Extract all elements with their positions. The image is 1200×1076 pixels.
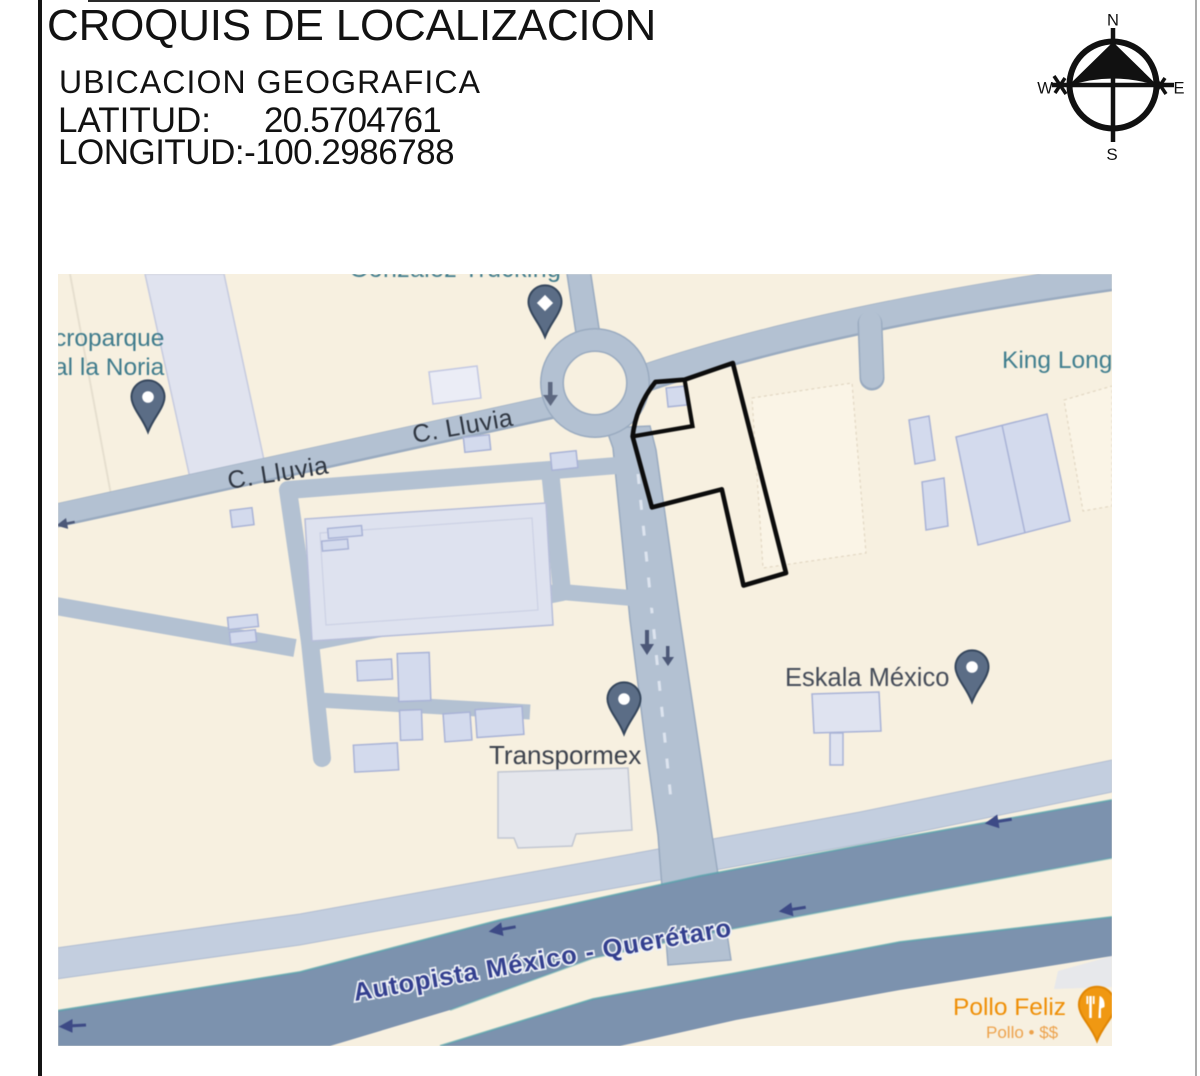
svg-text:Pollo • $$: Pollo • $$: [986, 1023, 1059, 1042]
svg-text:Transpormex: Transpormex: [489, 740, 641, 770]
svg-text:croparque: croparque: [58, 325, 164, 352]
svg-text:Eskala México: Eskala México: [785, 664, 949, 692]
svg-text:S: S: [1106, 145, 1117, 164]
svg-text:Gonzalez Trucking: Gonzalez Trucking: [349, 274, 561, 283]
svg-text:N: N: [1107, 12, 1119, 30]
svg-text:W: W: [1037, 80, 1053, 98]
svg-text:King Long: King Long: [1002, 347, 1112, 374]
svg-text:Pollo Feliz: Pollo Feliz: [953, 994, 1066, 1021]
svg-text:al la Noria: al la Noria: [58, 354, 165, 381]
svg-text:E: E: [1173, 80, 1184, 98]
